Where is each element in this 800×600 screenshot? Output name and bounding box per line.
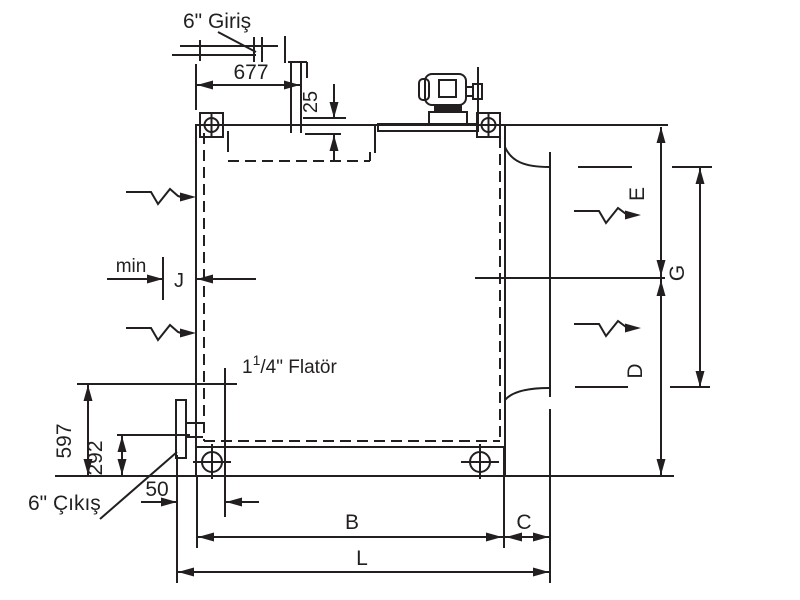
dim-g (696, 168, 705, 387)
dim-677-value: 677 (233, 61, 268, 84)
lifting-lug-right (477, 113, 500, 137)
technical-drawing-canvas: 6" Giriş 6" Çıkış 11/4" Flatör (0, 0, 800, 600)
dim-b-value: B (345, 511, 359, 534)
dim-l-value: L (356, 547, 368, 570)
motor-pump-unit (378, 67, 482, 131)
break-arrow-right-top (574, 208, 641, 223)
anchor-bolt-right (461, 444, 499, 479)
tank-inner-wall-dashed (204, 125, 500, 441)
dim-d-value: D (624, 363, 647, 378)
tank-body (55, 125, 674, 476)
dim-292-value: 292 (84, 440, 107, 475)
inlet-leader-line (218, 32, 256, 52)
break-arrow-left-top (126, 189, 196, 204)
dim-c-value: C (516, 511, 531, 534)
dim-e-value: E (626, 187, 649, 201)
dim-292 (117, 435, 190, 475)
break-arrow-right-bottom (574, 321, 641, 336)
tank-dimension-drawing: 6" Giriş 6" Çıkış 11/4" Flatör (0, 0, 800, 600)
outlet-label: 6" Çıkış (28, 492, 101, 515)
dim-597-value: 597 (53, 423, 76, 458)
inlet-label: 6" Giriş (183, 10, 251, 33)
min-label: min (116, 256, 147, 277)
dim-j-value: J (174, 270, 184, 292)
dim-25-value: 25 (300, 91, 322, 113)
dim-g-value: G (666, 265, 689, 281)
float-label: 11/4" Flatör (242, 352, 337, 378)
break-arrow-left-bottom (126, 325, 196, 340)
dim-e-d (657, 127, 666, 475)
dim-50-value: 50 (145, 478, 168, 501)
